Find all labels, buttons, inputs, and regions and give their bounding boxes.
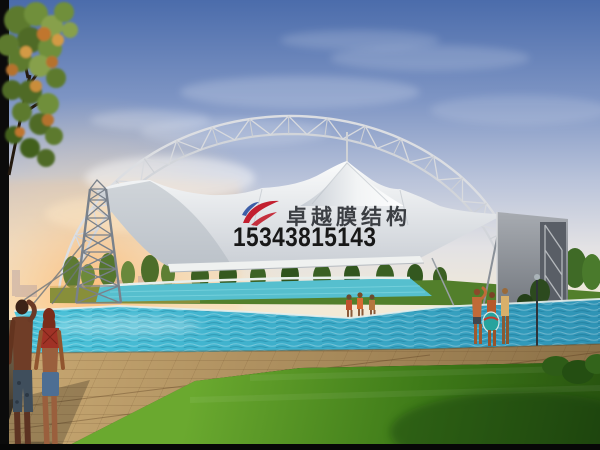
bottom-border-bar [0,444,600,450]
rendering-frame: 卓越膜结构 15343815143 [0,0,600,450]
watermark-phone-number: 15343815143 [233,222,376,253]
